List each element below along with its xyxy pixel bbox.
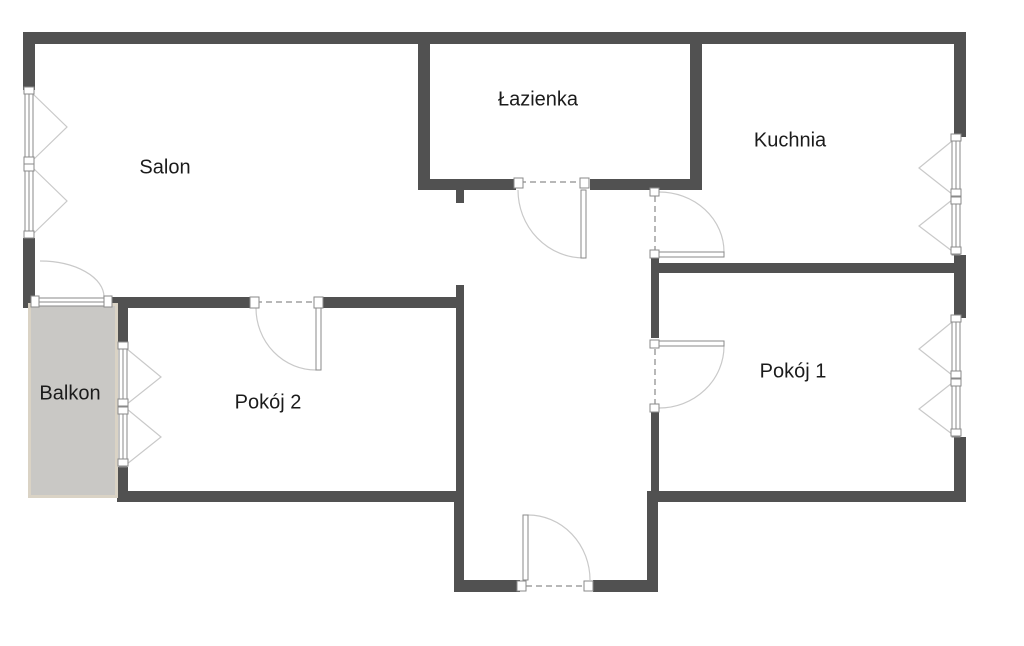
window-hinge	[24, 157, 34, 164]
wall-right-upper	[954, 44, 966, 137]
entrance-door	[517, 515, 593, 591]
door-hinge	[517, 581, 526, 591]
window-hinge	[24, 87, 34, 94]
window-hinge	[951, 379, 961, 386]
kuchnia-door	[650, 188, 724, 258]
wall-lazienka-bottom-a	[418, 179, 516, 190]
salon-window	[24, 87, 67, 238]
window-hinge	[951, 315, 961, 322]
kuchnia-window	[919, 134, 961, 255]
window-hinge	[951, 429, 961, 436]
room-label-pokoj1: Pokój 1	[760, 361, 827, 384]
window-hinge	[118, 342, 128, 349]
window-hinge	[118, 459, 128, 466]
wall-right-lower	[954, 437, 966, 502]
window-hinge	[951, 189, 961, 196]
wall-left-upper	[23, 44, 35, 90]
window-hinge	[951, 371, 961, 378]
door-swing-arc	[518, 190, 584, 258]
wall-hall-left-main	[456, 285, 464, 491]
door-hinge	[650, 188, 659, 196]
window-hinge	[118, 407, 128, 414]
pokoj2-balcony-window	[118, 342, 161, 467]
wall-right-mid	[954, 255, 966, 318]
door-hinge	[650, 404, 659, 412]
room-label-lazienka: Łazienka	[498, 89, 578, 112]
walls	[23, 32, 966, 592]
wall-pokoj2-bottom	[117, 491, 464, 502]
door-swing-arc	[256, 308, 316, 370]
window-hinge	[118, 399, 128, 406]
wall-lazienka-right	[690, 44, 702, 190]
window-hinge	[951, 134, 961, 141]
window-hinge	[951, 197, 961, 204]
window-swing	[919, 141, 952, 194]
window-swing	[919, 200, 952, 251]
window-hinge	[24, 164, 34, 171]
wall-salon-bottom-c	[322, 297, 464, 308]
door-leaf	[316, 308, 321, 370]
door-leaf	[659, 252, 724, 257]
room-label-kuchnia: Kuchnia	[754, 130, 826, 153]
door-hinge	[31, 296, 39, 307]
door-swing-arc	[659, 346, 724, 408]
door-leaf	[581, 190, 586, 258]
wall-balcony-right-top	[117, 297, 128, 345]
wall-pokoj1-bottom	[647, 491, 966, 502]
door-swing-arc	[528, 515, 590, 580]
door-hinge	[314, 297, 323, 308]
wall-kuchnia-pokoj1-divider	[651, 263, 966, 273]
door-hinge	[250, 297, 259, 308]
door-swing-arc	[659, 192, 724, 252]
door-hinge	[650, 340, 659, 348]
window-swing	[127, 349, 161, 404]
wall-hall-right-low	[651, 408, 659, 491]
door-hinge	[650, 250, 659, 258]
window-swing	[127, 409, 161, 464]
window-swing	[919, 383, 952, 434]
window-hinge	[24, 231, 34, 238]
pokoj2-door	[250, 297, 323, 370]
lazienka-door	[514, 178, 589, 258]
pokoj1-window	[919, 315, 961, 437]
window-swing	[919, 322, 952, 375]
window-swing	[33, 168, 67, 234]
door-hinge	[580, 178, 589, 188]
room-label-pokoj2: Pokój 2	[235, 392, 302, 415]
wall-lazienka-bottom-b	[590, 179, 702, 190]
door-swing-arc	[40, 261, 104, 297]
door-leaf	[659, 341, 724, 346]
wall-vestibule-right	[647, 491, 658, 592]
window-swing	[33, 94, 67, 160]
wall-hall-left-stub	[456, 189, 464, 203]
room-label-salon: Salon	[139, 157, 190, 180]
wall-vestibule-bottom-a	[454, 580, 520, 592]
wall-vestibule-left	[454, 491, 464, 592]
window-hinge	[951, 247, 961, 254]
door-hinge	[584, 581, 593, 591]
door-hinge	[104, 296, 112, 307]
wall-lazienka-left	[418, 44, 430, 190]
wall-top	[23, 32, 966, 44]
pokoj1-door	[650, 340, 724, 412]
room-label-balkon: Balkon	[39, 383, 100, 406]
balcony-door	[31, 261, 112, 307]
door-leaf	[523, 515, 528, 580]
floor-plan: Salon Łazienka Kuchnia Balkon Pokój 2 Po…	[0, 0, 1024, 646]
door-hinge	[514, 178, 523, 188]
